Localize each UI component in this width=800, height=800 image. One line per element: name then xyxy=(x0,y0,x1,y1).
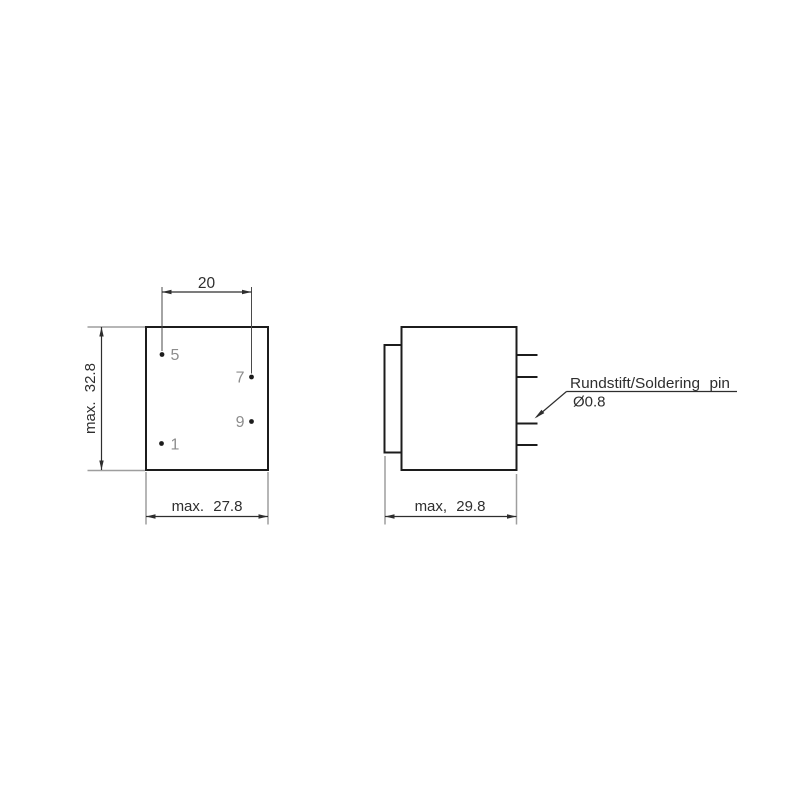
front-view-body-outline xyxy=(146,327,268,470)
arrow-left-icon xyxy=(146,514,156,518)
dim-width-front: max. 27.8 xyxy=(146,472,268,525)
pin-marker-1 xyxy=(159,441,164,446)
pin-label-7: 7 xyxy=(236,370,245,387)
side-view: max, 29.8 Rundstift/Soldering pin Ø0.8 xyxy=(385,327,738,525)
pin-marker-9 xyxy=(249,419,254,424)
side-view-body-outline xyxy=(402,327,517,470)
dim-height-label: max. 32.8 xyxy=(82,363,99,434)
dim-height: max. 32.8 xyxy=(82,327,145,471)
dim-width-side-label: max, 29.8 xyxy=(415,498,486,515)
drawing-canvas: 20 max. 32.8 max. 27.8 xyxy=(0,0,800,800)
dimensional-drawing: 20 max. 32.8 max. 27.8 xyxy=(0,0,800,800)
arrow-right-icon xyxy=(507,514,517,518)
pin-label-5: 5 xyxy=(171,347,180,364)
dim-width-front-label: max. 27.8 xyxy=(172,498,243,515)
arrow-left-icon xyxy=(385,514,395,518)
soldering-pin-callout: Rundstift/Soldering pin Ø0.8 xyxy=(535,375,738,419)
callout-title: Rundstift/Soldering pin xyxy=(570,375,730,392)
arrow-down-icon xyxy=(99,461,103,471)
side-view-flange-outline xyxy=(385,345,402,453)
arrow-up-icon xyxy=(99,327,103,337)
soldering-pins xyxy=(517,355,538,445)
callout-diameter: Ø0.8 xyxy=(573,394,606,411)
front-view: 20 max. 32.8 max. 27.8 xyxy=(82,275,268,525)
pin-label-9: 9 xyxy=(236,414,245,431)
arrow-right-icon xyxy=(242,290,252,294)
dim-pin-spacing-label: 20 xyxy=(198,275,216,292)
pin-marker-7 xyxy=(249,375,254,380)
arrow-left-icon xyxy=(162,290,172,294)
arrow-right-icon xyxy=(259,514,269,518)
pin-label-1: 1 xyxy=(171,437,180,454)
pin-marker-5 xyxy=(160,352,165,357)
